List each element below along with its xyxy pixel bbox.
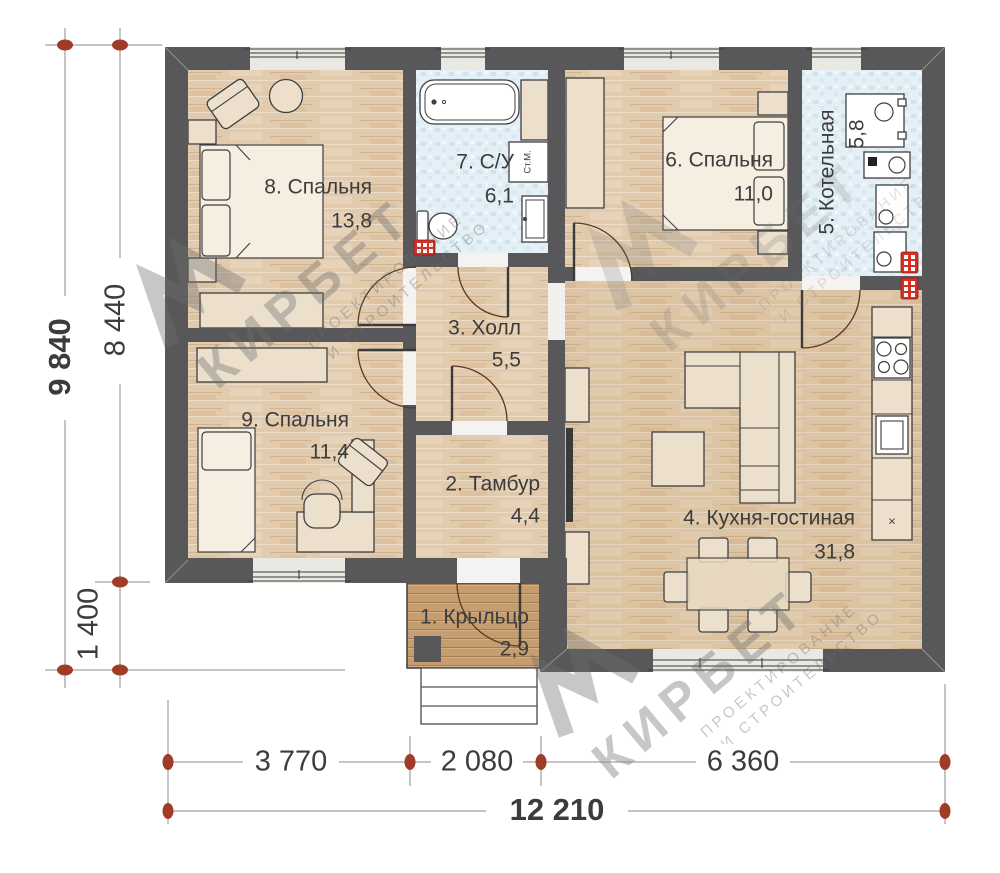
dim-marker (536, 754, 547, 770)
dim-left-total: 9 840 (42, 318, 77, 396)
floor-plan-page: Ст.М. (0, 0, 1000, 873)
room-area-bedroom-6: 11,0 (734, 183, 773, 206)
coffee-table (652, 432, 704, 486)
bath-tap (431, 99, 436, 104)
desk-chair (304, 494, 340, 528)
room-area-porch: 2,9 (500, 638, 529, 661)
porch-steps (421, 668, 537, 724)
nightstand (758, 92, 788, 115)
room-label-bedroom-6: 6. Спальня (665, 149, 773, 172)
porch-mat (414, 636, 441, 662)
window-bedroom-6 (618, 47, 725, 70)
dim-marker (405, 754, 416, 770)
window-bedroom-8 (244, 47, 351, 70)
dim-bottom-segment-3: 6 360 (707, 746, 780, 778)
radiator-kitchen (901, 278, 918, 299)
room-area-kitchen-living: 31,8 (814, 541, 855, 564)
dim-bottom-segment-2: 2 080 (441, 746, 514, 778)
room-area-boiler: 5,8 (846, 119, 869, 148)
dim-bottom-total: 12 210 (510, 792, 605, 827)
room-label-hall: 3. Холл (448, 317, 521, 340)
wall-cabinet (565, 532, 589, 584)
tv (566, 428, 573, 522)
hall-kitchen-opening (548, 283, 565, 340)
nightstand (188, 120, 216, 144)
bathroom-cabinet (521, 80, 548, 140)
pillow (202, 432, 251, 470)
wall-cabinet (565, 368, 589, 422)
dim-marker (940, 754, 951, 770)
pouf (270, 80, 303, 113)
room-label-bedroom-8: 8. Спальня (264, 176, 372, 199)
room-label-kitchen-living: 4. Кухня-гостиная (683, 507, 855, 530)
hall-floor (416, 267, 548, 421)
dim-left-lower: 1 400 (73, 588, 105, 661)
room-area-bedroom-8: 13,8 (331, 210, 372, 233)
room-area-vestibule: 4,4 (511, 505, 541, 528)
boiler-pipe (898, 132, 906, 139)
dim-marker (112, 40, 128, 51)
dim-left-upper: 8 440 (100, 284, 132, 357)
room-area-bedroom-9: 11,4 (310, 441, 350, 464)
room-area-bathroom: 6,1 (485, 185, 514, 208)
washing-machine-label: Ст.М. (523, 150, 534, 173)
room-label-bathroom: 7. С/У (456, 151, 514, 174)
window-bedroom-9 (247, 558, 351, 583)
dining-chair (664, 572, 689, 602)
wall-right (922, 47, 945, 672)
room-label-boiler: 5. Котельная (816, 109, 839, 234)
room-label-bedroom-9: 9. Спальня (241, 409, 349, 432)
cabinet-x-mark: × (888, 513, 896, 528)
entrance-opening (457, 558, 520, 583)
window-bathroom (436, 47, 490, 70)
sink-tap (523, 217, 527, 221)
room-label-vestibule: 2. Тамбур (445, 473, 540, 496)
floor-plan-drawing: Ст.М. (0, 0, 1000, 873)
dim-marker (57, 665, 73, 676)
dim-marker (112, 577, 128, 588)
pillow (202, 205, 230, 256)
dim-bottom-segment-1: 3 770 (255, 746, 328, 778)
wardrobe (566, 78, 604, 208)
boiler-switch (868, 157, 877, 166)
dim-marker (57, 40, 73, 51)
dim-marker (112, 665, 128, 676)
vestibule-floor (416, 435, 548, 558)
wall-column-right-lower (548, 340, 565, 649)
radiator-boiler (901, 252, 918, 273)
wall-column-right-upper (548, 70, 565, 283)
dim-marker (940, 803, 951, 819)
window-boiler (806, 47, 867, 70)
dim-marker (163, 803, 174, 819)
boiler-pipe (898, 99, 906, 106)
pillow (202, 150, 230, 200)
room-label-porch: 1. Крыльцо (420, 606, 529, 629)
room-area-hall: 5,5 (492, 349, 521, 372)
dim-marker (163, 754, 174, 770)
